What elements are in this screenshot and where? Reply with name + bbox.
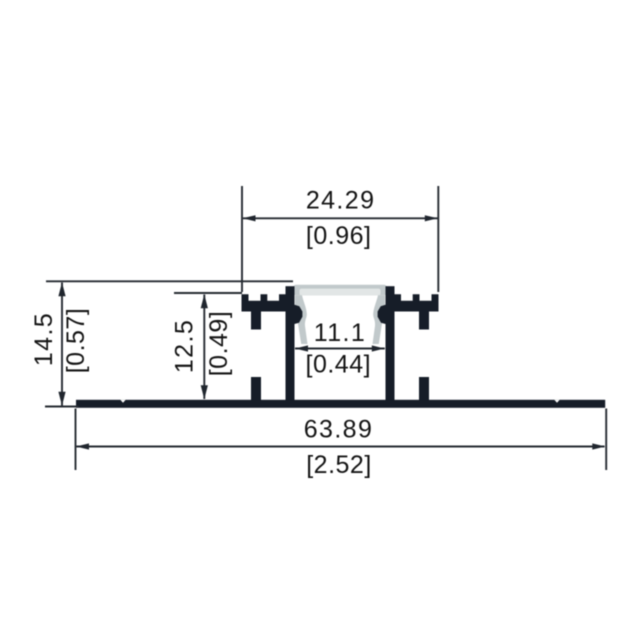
svg-text:[0.96]: [0.96]	[306, 222, 372, 250]
svg-text:12.5: 12.5	[171, 319, 199, 373]
svg-text:[2.52]: [2.52]	[306, 451, 372, 479]
svg-text:63.89: 63.89	[304, 415, 374, 443]
svg-text:11.1: 11.1	[314, 319, 366, 347]
svg-text:24.29: 24.29	[306, 186, 376, 214]
svg-text:[0.57]: [0.57]	[62, 308, 90, 374]
svg-text:[0.49]: [0.49]	[205, 311, 233, 377]
svg-text:[0.44]: [0.44]	[306, 350, 372, 378]
svg-text:14.5: 14.5	[30, 312, 58, 366]
